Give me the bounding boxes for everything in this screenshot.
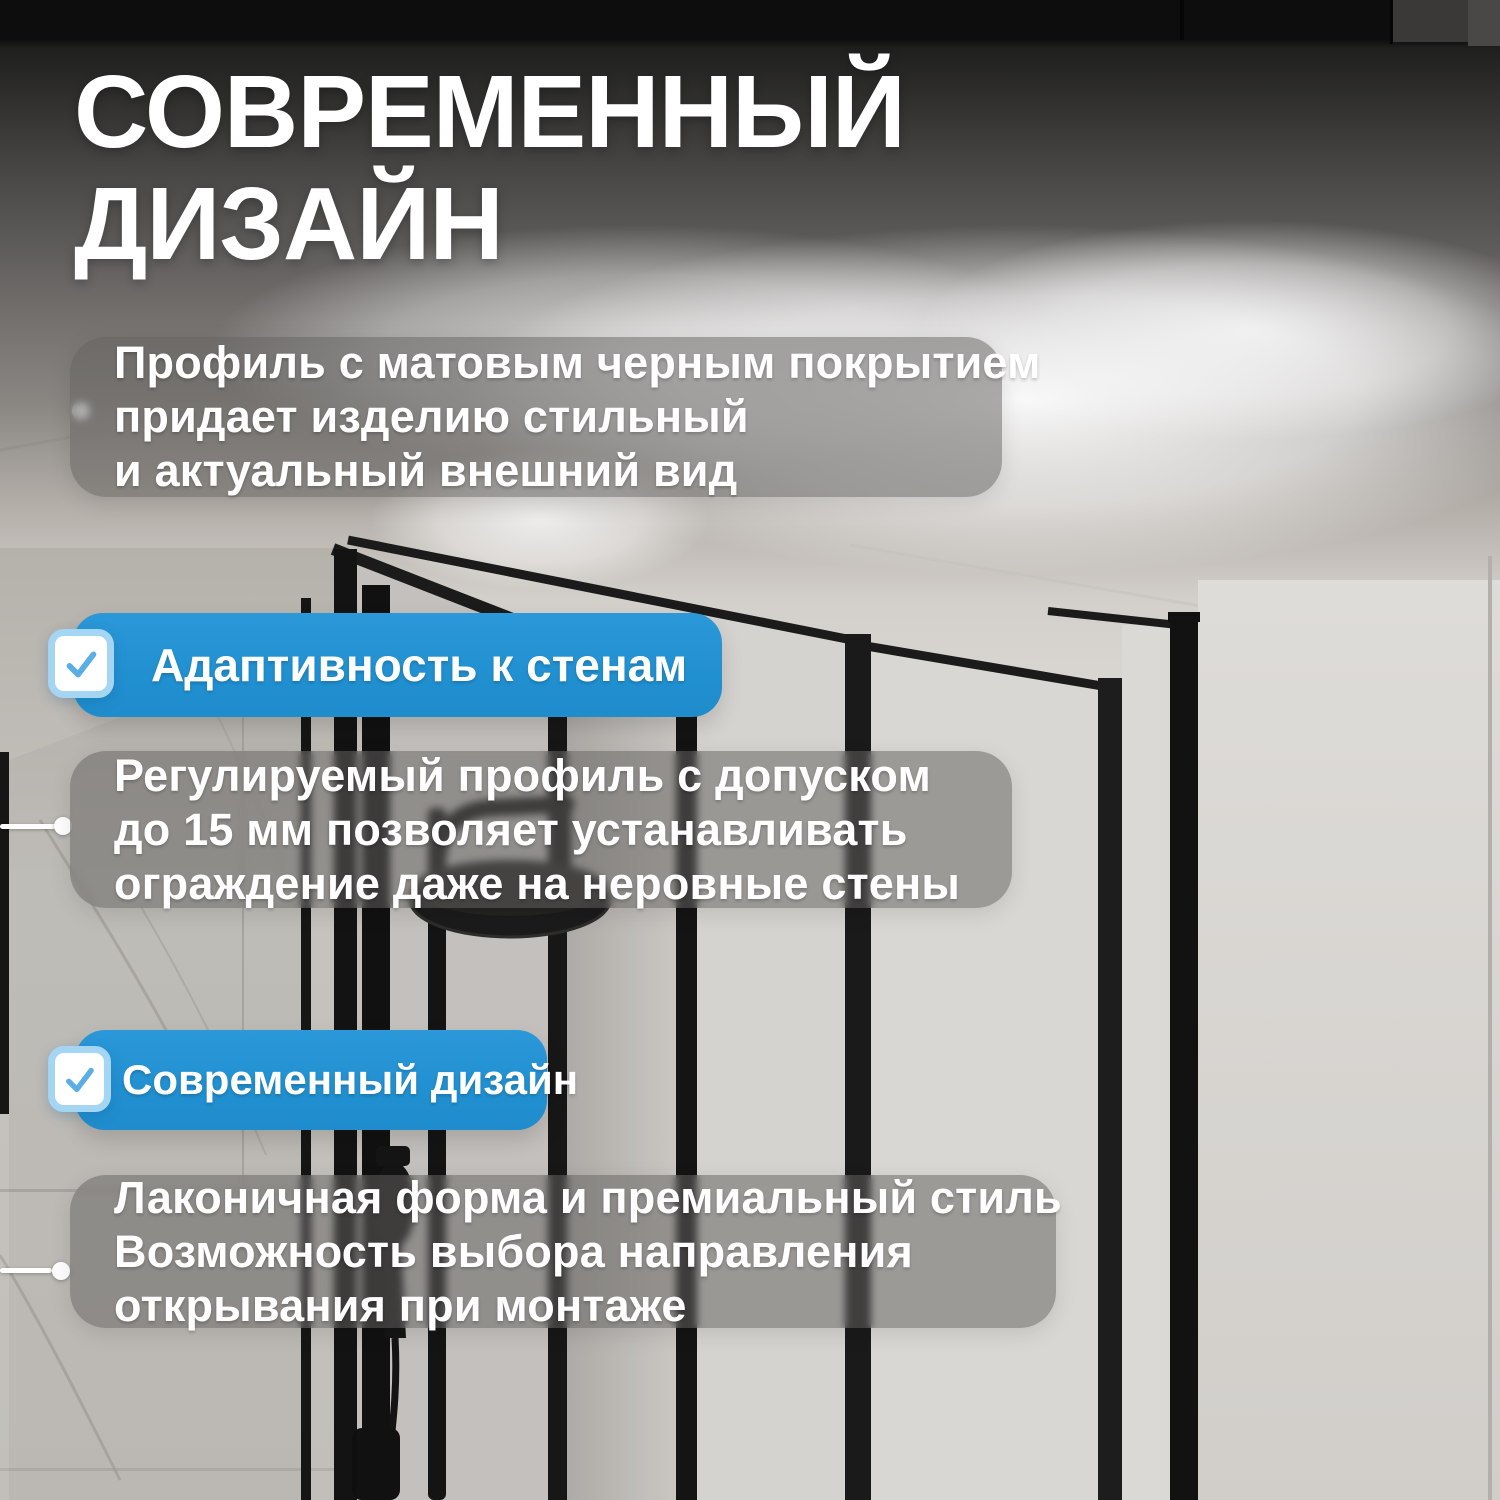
note-line: до 15 мм позволяет устанавливать [114,803,1012,857]
page-title: СОВРЕМЕННЫЙ ДИЗАЙН [74,56,1174,280]
checkmark-icon [48,629,114,698]
connector-line [0,1268,52,1273]
note-line: Регулируемый профиль с допуском [114,749,1012,803]
text-overlay: СОВРЕМЕННЫЙ ДИЗАЙН Профиль с матовым чер… [0,0,1500,1500]
page-title-line2: ДИЗАЙН [74,168,1174,280]
connector-line [0,824,56,829]
feature-note-laconic-form: Лаконичная форма и премиальный стиль Воз… [70,1175,1056,1328]
badge-label: Адаптивность к стенам [73,638,687,692]
infographic-canvas: СОВРЕМЕННЫЙ ДИЗАЙН Профиль с матовым чер… [0,0,1500,1500]
note-line: Возможность выбора направления [114,1225,1056,1279]
note-line: Профиль с матовым черным покрытием [114,336,1002,390]
feature-note-coating: Профиль с матовым черным покрытием прида… [70,337,1002,497]
note-line: и актуальный внешний вид [114,444,1002,498]
checkmark-glyph [58,641,104,687]
checkmark-glyph [58,1058,101,1101]
note-line: Лаконичная форма и премиальный стиль [114,1171,1056,1225]
checkmark-icon [48,1046,111,1112]
dot-marker [52,1262,70,1280]
badge-modern-design: Современный дизайн [75,1030,547,1130]
note-line: ограждение даже на неровные стены [114,857,1012,911]
note-line: придает изделию стильный [114,390,1002,444]
page-title-line1: СОВРЕМЕННЫЙ [74,56,1174,168]
badge-wall-adaptability: Адаптивность к стенам [73,613,722,717]
feature-note-adjustable-profile: Регулируемый профиль с допуском до 15 мм… [70,751,1012,908]
badge-label: Современный дизайн [75,1056,578,1104]
note-line: открывания при монтаже [114,1279,1056,1333]
